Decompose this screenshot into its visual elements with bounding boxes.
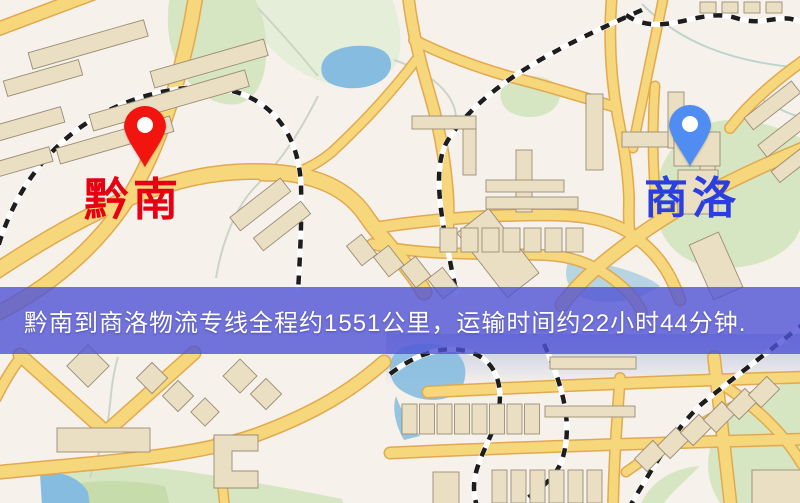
destination-pin-icon [667, 100, 713, 168]
origin-label: 黔南 [84, 177, 182, 222]
logistics-route-map: 黔南 商洛 黔南到商洛物流专线全程约1551公里，运输时间约22小时44分钟. [0, 0, 800, 503]
route-info-banner: 黔南到商洛物流专线全程约1551公里，运输时间约22小时44分钟. [0, 287, 800, 354]
destination-label: 商洛 [644, 177, 740, 221]
origin-pin-icon [122, 101, 168, 169]
map-background [0, 0, 800, 503]
route-info-text: 黔南到商洛物流专线全程约1551公里，运输时间约22小时44分钟. [0, 303, 746, 338]
